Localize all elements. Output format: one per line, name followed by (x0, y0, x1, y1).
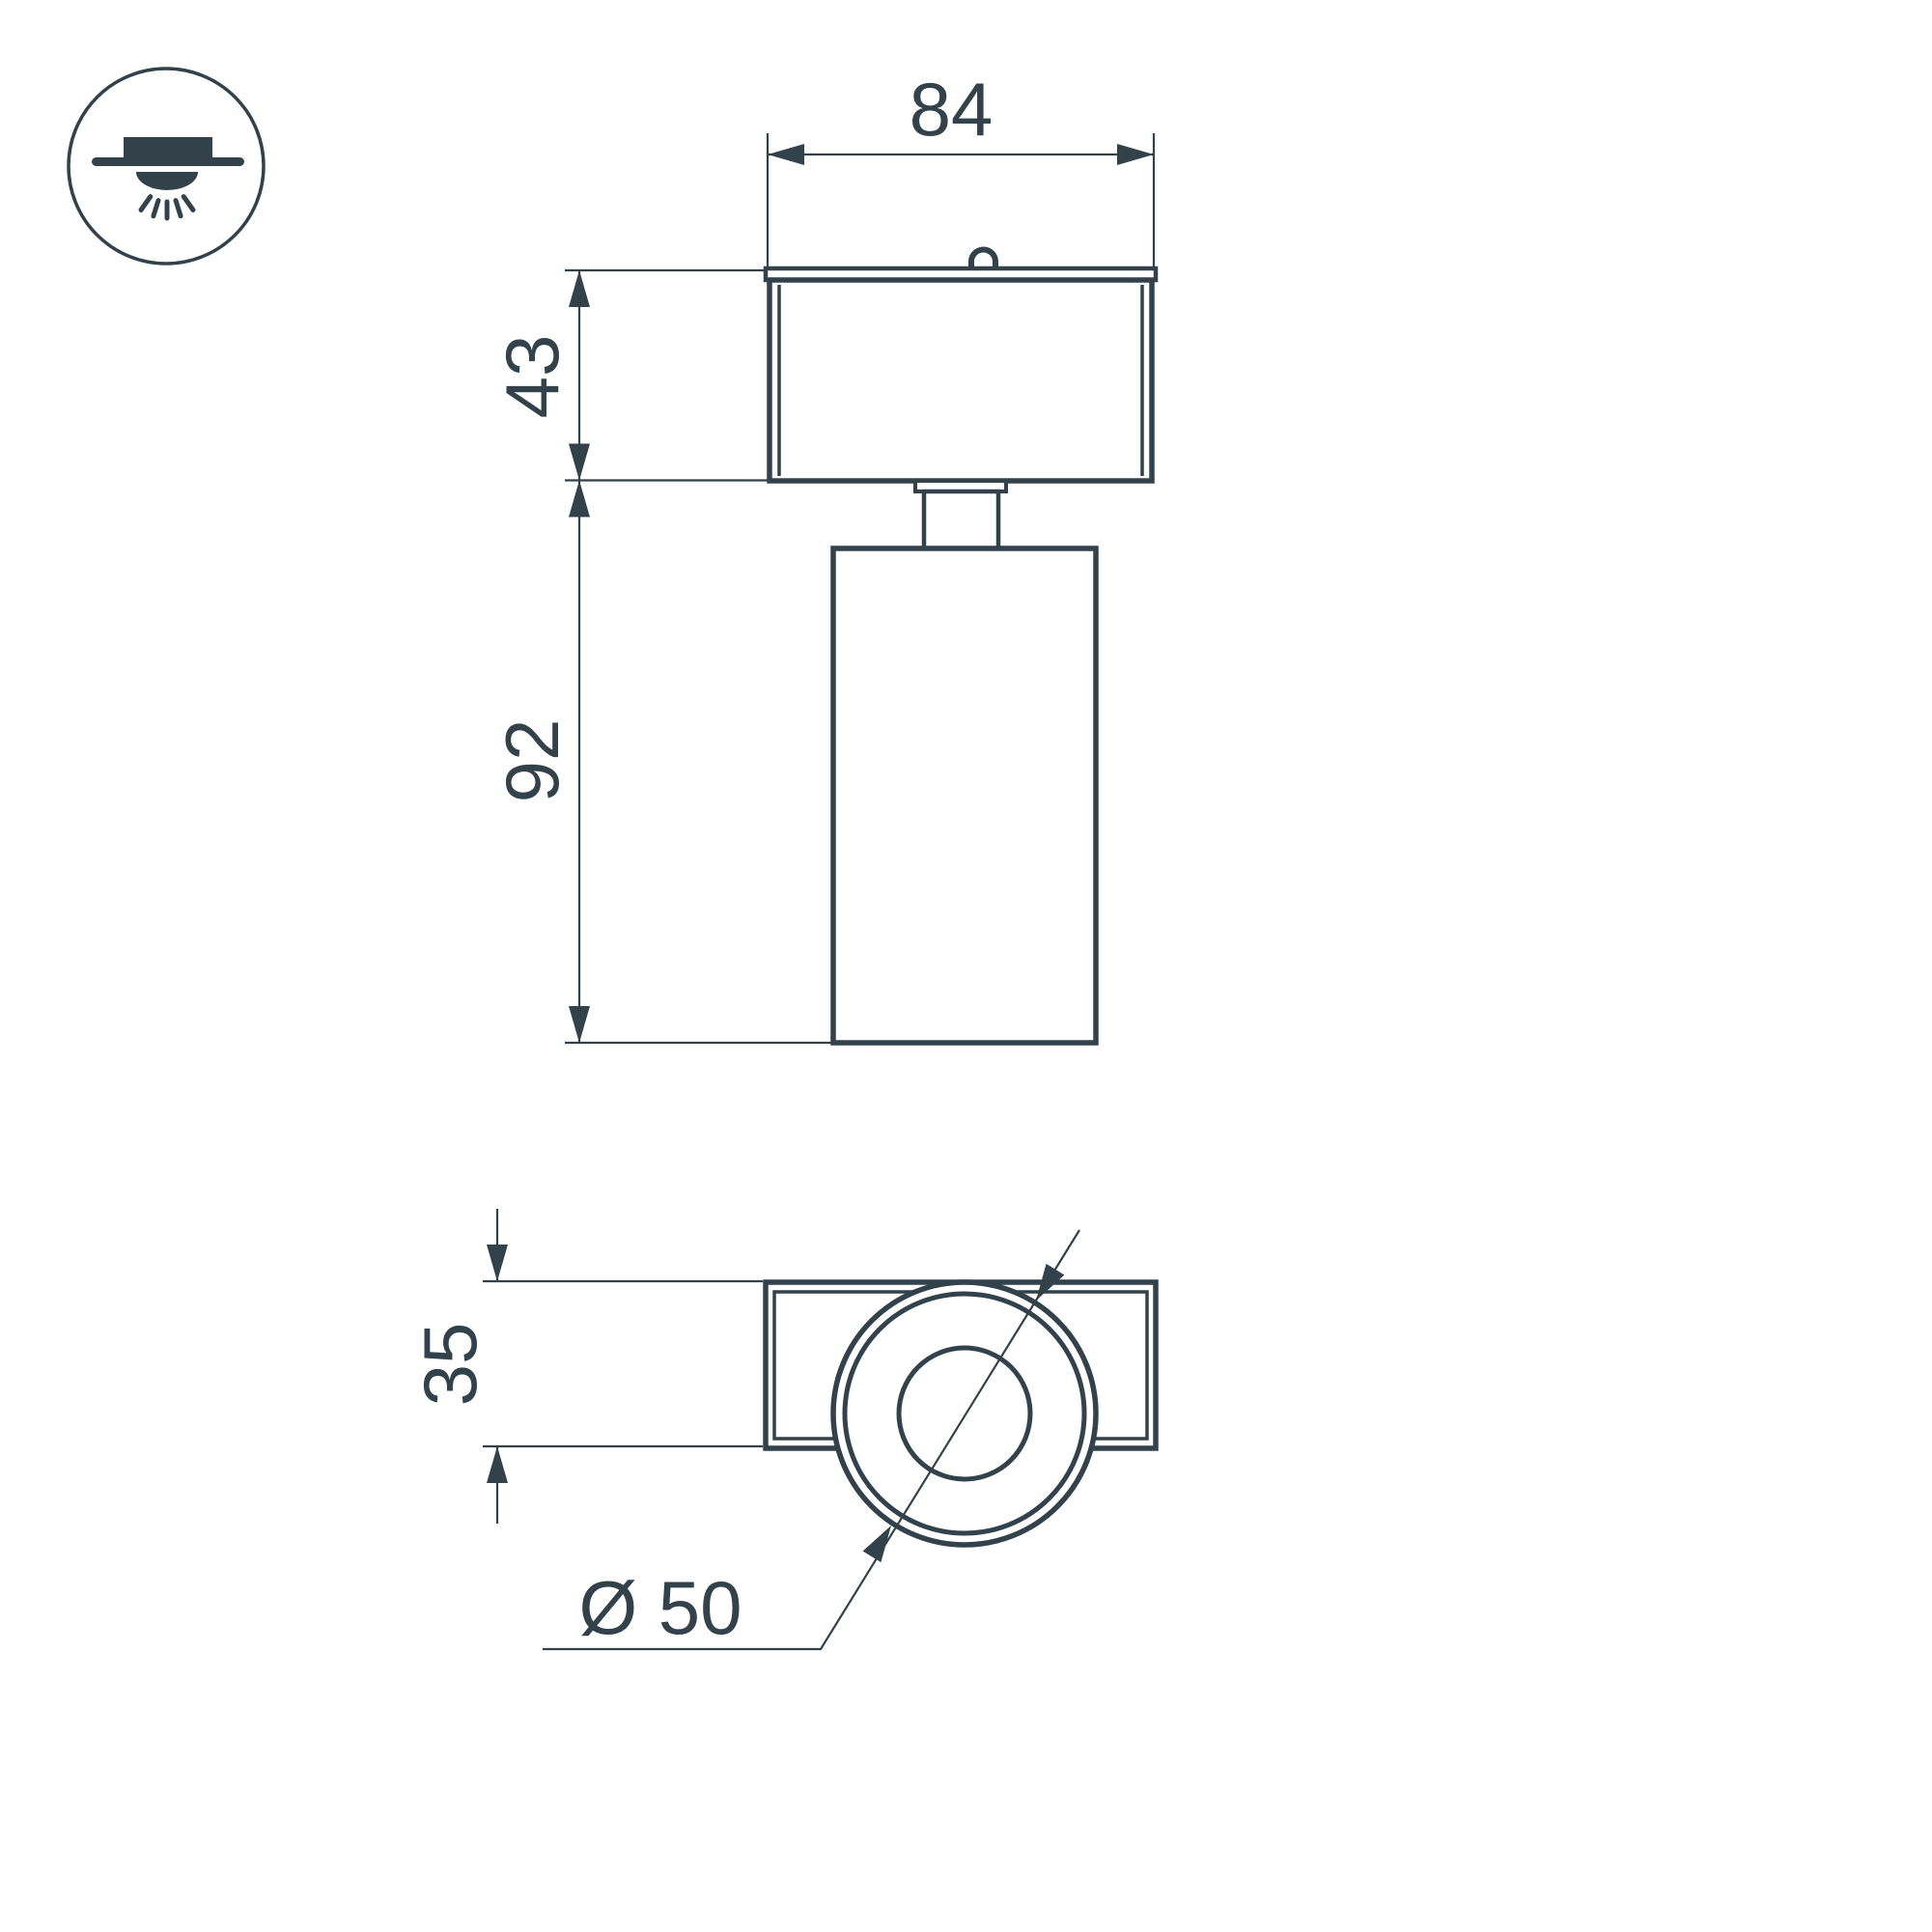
body-outer-circle (833, 1282, 1096, 1545)
hanging-loop (971, 250, 995, 269)
arrowhead-right (1117, 144, 1154, 165)
dim-label-body-height: 92 (490, 719, 574, 803)
icon-lamp-dome (136, 172, 198, 190)
dimension-width: 84 (768, 67, 1154, 268)
arrowhead-down (487, 1245, 508, 1281)
front-view (766, 250, 1156, 1044)
arrowhead-down (569, 444, 590, 481)
bottom-view (766, 1282, 1156, 1545)
arrowhead-lower (863, 1526, 891, 1562)
icon-light-rays (141, 197, 193, 218)
arrowhead-down (569, 1006, 590, 1043)
drawing-page: 84 43 92 35 Ø 50 (0, 0, 1932, 1932)
icon-ceiling-line (92, 157, 244, 166)
icon-lamp-housing (124, 137, 212, 159)
dim-label-width: 84 (910, 67, 994, 152)
pivot-neck (924, 491, 998, 548)
lamp-body (833, 548, 1096, 1043)
arrowhead-up (569, 270, 590, 307)
arrowhead-up (487, 1446, 508, 1483)
ceiling-mount-icon (69, 69, 264, 264)
dim-label-bracket-height: 43 (490, 335, 574, 419)
dimension-drawing: 84 43 92 35 Ø 50 (0, 0, 1932, 1932)
dim-label-diameter: Ø 50 (578, 1565, 742, 1650)
arrowhead-left (768, 144, 804, 165)
dim-label-depth: 35 (407, 1323, 492, 1407)
mounting-box (770, 280, 1152, 481)
dimension-depth: 35 (407, 1209, 763, 1524)
arrowhead-up (569, 481, 590, 518)
